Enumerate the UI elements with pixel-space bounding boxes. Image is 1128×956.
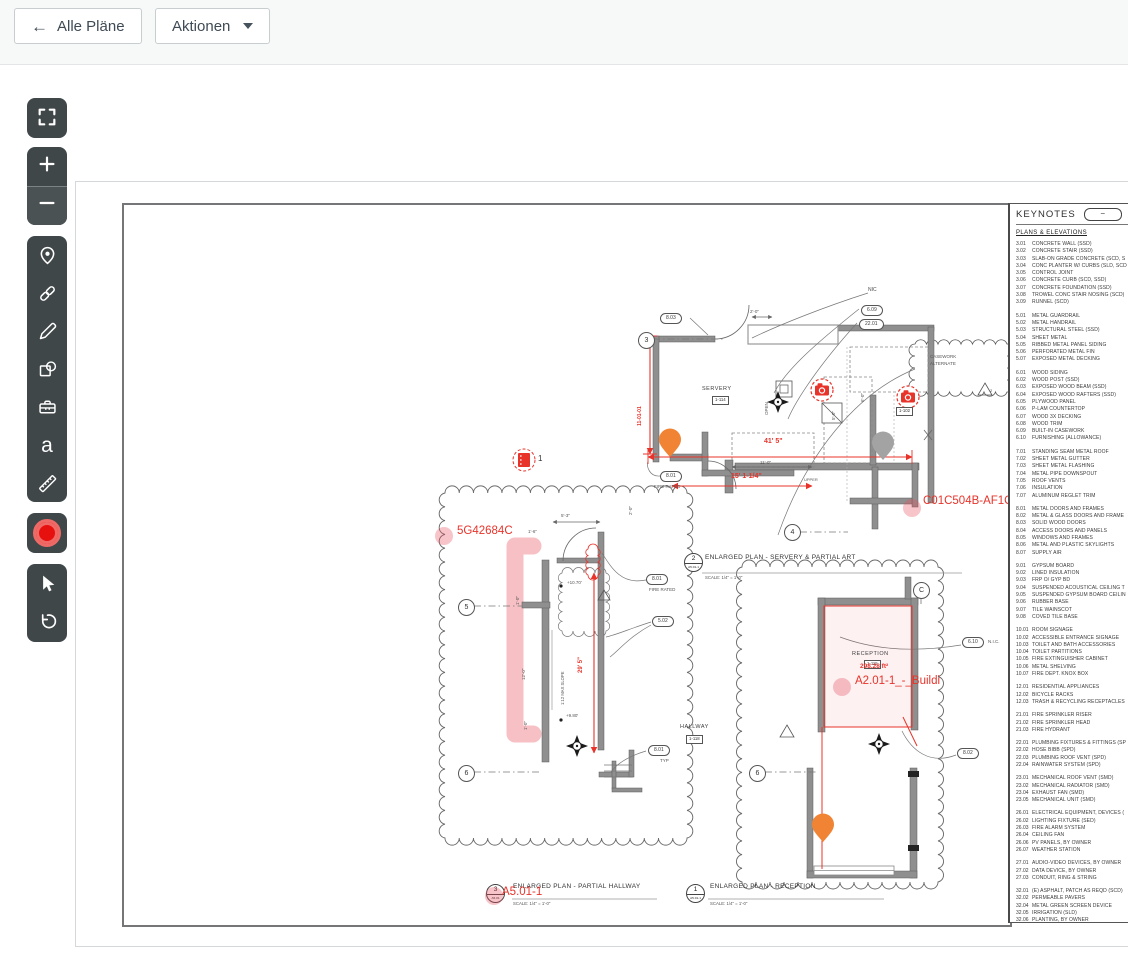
keynote-bubble-8-03: 8.03 [660, 313, 682, 324]
keynote-code: 8.07 [1016, 550, 1032, 557]
toolbox-button[interactable] [27, 388, 67, 426]
keynote-code: 9.03 [1016, 577, 1032, 584]
keynote-code: 32.04 [1016, 903, 1032, 910]
keynote-text: FIRE EXTINGUISHER CABINET [1032, 656, 1108, 663]
dim-1-0-a: 1'-0" [515, 596, 520, 605]
keynote-text: METAL DOORS AND FRAMES [1032, 506, 1104, 513]
zoom-out-button[interactable] [27, 186, 67, 226]
keynote-code: 5.01 [1016, 313, 1032, 320]
map-pin-icon [37, 245, 58, 266]
keynotes-section-title: PLANS & ELEVATIONS [1016, 230, 1128, 236]
keynote-text: METAL PIPE DOWNSPOUT [1032, 471, 1097, 478]
keynote-text: MECHANICAL ROOF VENT (SMD) [1032, 775, 1114, 782]
keynote-row: 6.06P-LAM COUNTERTOP [1016, 406, 1128, 413]
keynote-code: 5.05 [1016, 342, 1032, 349]
keynote-row: 8.05WINDOWS AND FRAMES [1016, 535, 1128, 542]
keynote-text: LIGHTING FIXTURE (SED) [1032, 818, 1096, 825]
keynote-bubble-22-01: 22.01 [859, 319, 884, 330]
measure-tool-button[interactable] [27, 464, 67, 502]
keynote-code: 7.06 [1016, 485, 1032, 492]
keynote-code: 3.05 [1016, 270, 1032, 277]
annotation-dot-reception[interactable] [833, 678, 851, 696]
shapes-tool-button[interactable] [27, 350, 67, 388]
keynote-row: 23.04EXHAUST FAN (SMD) [1016, 790, 1128, 797]
keynote-code: 3.08 [1016, 292, 1032, 299]
pin-tool-button[interactable] [27, 236, 67, 274]
keynote-code: 26.01 [1016, 810, 1032, 817]
keynote-group: 8.01METAL DOORS AND FRAMES8.02METAL & GL… [1016, 506, 1128, 557]
keynote-code: 10.03 [1016, 642, 1032, 649]
keynote-code: 23.05 [1016, 797, 1032, 804]
keynote-code: 10.02 [1016, 635, 1032, 642]
keynote-text: PLUMBING FIXTURES & FITTINGS (SP [1032, 740, 1126, 747]
keynote-group: 21.01FIRE SPRINKLER RISER21.02FIRE SPRIN… [1016, 712, 1128, 734]
location-pin-orange-2[interactable] [812, 814, 834, 843]
keynote-code: 5.06 [1016, 349, 1032, 356]
keynote-text: AUDIO-VIDEO DEVICES, BY OWNER [1032, 860, 1121, 867]
keynote-group: 32.01(E) ASPHALT, PATCH AS REQD (SCD)32.… [1016, 888, 1128, 923]
north-arrow-reception [868, 733, 890, 755]
keynote-text: SOLID WOOD DOORS [1032, 520, 1086, 527]
keynote-code: 6.03 [1016, 384, 1032, 391]
select-undo-toolbar [27, 564, 67, 642]
minus-icon [36, 192, 58, 219]
keynote-row: 5.03STRUCTURAL STEEL (SSD) [1016, 327, 1128, 334]
keynote-text: WINDOWS AND FRAMES [1032, 535, 1093, 542]
keynote-row: 22.03PLUMBING ROOF VENT (SPD) [1016, 755, 1128, 762]
actions-button-label: Aktionen [172, 18, 230, 35]
keynote-row: 21.02FIRE SPRINKLER HEAD [1016, 720, 1128, 727]
dim-5-3: 5'-3" [561, 513, 570, 518]
keynote-row: 26.04CEILING FAN [1016, 832, 1128, 839]
keynote-code: 10.04 [1016, 649, 1032, 656]
keynote-row: 26.01ELECTRICAL EQUIPMENT, DEVICES ( [1016, 810, 1128, 817]
keynote-text: TRASH & RECYCLING RECEPTACLES [1032, 699, 1125, 706]
keynote-text: ELECTRICAL EQUIPMENT, DEVICES ( [1032, 810, 1124, 817]
keynote-text: RUBBER BASE [1032, 599, 1069, 606]
back-arrow-icon: ← [31, 18, 48, 35]
text-icon: a [41, 435, 53, 456]
keynote-row: 32.06PLANTING, BY OWNER [1016, 917, 1128, 923]
dim-1-0-b: 1'-0" [523, 721, 528, 730]
keynote-code: 10.07 [1016, 671, 1032, 678]
note-max-slope: 1:12 MAX SLOPE [560, 671, 565, 705]
plus-icon [36, 153, 58, 180]
keynote-code: 22.01 [1016, 740, 1032, 747]
keynote-text: (E) ASPHALT, PATCH AS REQD (SCD) [1032, 888, 1123, 895]
keynote-code: 21.01 [1016, 712, 1032, 719]
ruler-icon [37, 473, 58, 494]
keynote-text: METAL SHELVING [1032, 664, 1076, 671]
keynote-code: 23.01 [1016, 775, 1032, 782]
keynote-text: RIBBED METAL PANEL SIDING [1032, 342, 1106, 349]
keynote-text: INSULATION [1032, 485, 1063, 492]
keynote-row: 7.05ROOF VENTS [1016, 478, 1128, 485]
keynote-row: 6.08WOOD TRIM [1016, 421, 1128, 428]
keynote-text: TOILET AND BATH ACCESSORIES [1032, 642, 1115, 649]
note-alternate: ALTERNATE [930, 361, 956, 366]
toolbox-icon [37, 397, 58, 418]
keynote-row: 32.01(E) ASPHALT, PATCH AS REQD (SCD) [1016, 888, 1128, 895]
keynote-text: FIRE SPRINKLER HEAD [1032, 720, 1090, 727]
keynote-code: 26.07 [1016, 847, 1032, 854]
keynote-row: 8.01METAL DOORS AND FRAMES [1016, 506, 1128, 513]
keynote-row: 32.05IRRIGATION (SLD) [1016, 910, 1128, 917]
keynote-row: 23.05MECHANICAL UNIT (SMD) [1016, 797, 1128, 804]
keynote-text: RUNNEL (SCD) [1032, 299, 1069, 306]
red-color-swatch-icon [33, 519, 61, 547]
dimension-vertical-red[interactable]: 11-01-01 [637, 406, 643, 426]
grid-bubble-3: 3 [638, 332, 655, 349]
keynote-code: 6.06 [1016, 406, 1032, 413]
keynote-text: PLUMBING ROOF VENT (SPD) [1032, 755, 1106, 762]
keynote-text: SLAB-ON GRADE CONCRETE (SCD, S [1032, 256, 1125, 263]
keynote-code: 3.03 [1016, 256, 1032, 263]
undo-icon [37, 611, 58, 632]
keynote-code: 10.06 [1016, 664, 1032, 671]
keynote-code: 6.09 [1016, 428, 1032, 435]
keynote-text: METAL HANDRAIL [1032, 320, 1076, 327]
keynote-text: STANDING SEAM METAL ROOF [1032, 449, 1109, 456]
keynote-code: 3.04 [1016, 263, 1032, 270]
north-arrow-hallway [566, 735, 588, 757]
keynotes-header: KEYNOTES − [1016, 208, 1128, 225]
keynotes-panel: KEYNOTES − PLANS & ELEVATIONS 3.01CONCRE… [1008, 203, 1128, 923]
actions-dropdown-button[interactable]: Aktionen [155, 8, 270, 44]
dim-5-0: 5'-0" [831, 411, 836, 420]
dimension-29-5[interactable]: 29' 5" [578, 657, 584, 673]
keynote-row: 5.05RIBBED METAL PANEL SIDING [1016, 342, 1128, 349]
note-nic: NIC [868, 287, 877, 293]
keynote-row: 10.02ACCESSIBLE ENTRANCE SIGNAGE [1016, 635, 1128, 642]
keynote-code: 6.05 [1016, 399, 1032, 406]
keynote-bubble-5-02: 5.02 [652, 616, 674, 627]
measured-area-value[interactable]: 298.28 ft² [860, 663, 888, 670]
keynote-text: IRRIGATION (SLD) [1032, 910, 1077, 917]
photo-marker-2[interactable] [897, 386, 919, 408]
keynote-text: SHEET METAL FLASHING [1032, 463, 1094, 470]
keynotes-title: KEYNOTES [1016, 209, 1076, 220]
keynote-row: 7.01STANDING SEAM METAL ROOF [1016, 449, 1128, 456]
keynote-row: 3.03SLAB-ON GRADE CONCRETE (SCD, S [1016, 256, 1128, 263]
viewport-scale-hallway: SCALE: 1/4" = 1'-0" [513, 901, 550, 906]
room-label-servery: SERVERY [702, 386, 732, 392]
keynote-text: CONCRETE CURB (SCD, SSD) [1032, 277, 1106, 284]
keynote-text: CEILING FAN [1032, 832, 1064, 839]
keynote-bubble-8-01-b: 8.01 [646, 574, 668, 585]
link-icon [37, 283, 58, 304]
dim-2-0-top: 2'-0" [750, 309, 759, 314]
room-number-hallway: 1-118 [686, 735, 703, 744]
keynote-code: 12.02 [1016, 692, 1032, 699]
keynote-row: 5.06PERFORATED METAL FIN [1016, 349, 1128, 356]
keynote-text: WEATHER STATION [1032, 847, 1080, 854]
keynote-text: ROOF VENTS [1032, 478, 1066, 485]
keynote-code: 3.01 [1016, 241, 1032, 248]
keynote-row: 5.07EXPOSED METAL DECKING [1016, 356, 1128, 363]
keynote-code: 10.01 [1016, 627, 1032, 634]
photo-marker-tag: 1-102 [896, 407, 913, 416]
keynote-row: 9.05SUSPENDED GYPSUM BOARD CEILIN [1016, 592, 1128, 599]
dim-6-0: 6'-0" [860, 393, 865, 402]
keynote-row: 6.02WOOD POST (SSD) [1016, 377, 1128, 384]
keynote-code: 22.03 [1016, 755, 1032, 762]
note-open: OPEN [764, 402, 769, 415]
keynote-text: PERMEABLE PAVERS [1032, 895, 1085, 902]
viewport-scale-reception: SCALE: 1/4" = 1'-0" [710, 901, 747, 906]
keynote-text: SUPPLY AIR [1032, 550, 1062, 557]
keynote-row: 3.02CONCRETE STAIR (SSD) [1016, 248, 1128, 255]
viewport-ref-2: 2 A5.01-1 [684, 553, 703, 572]
keynote-text: SHEET METAL GUTTER [1032, 456, 1090, 463]
keynote-text: BUILT-IN CASEWORK [1032, 428, 1084, 435]
dim-11-0: 11'-0" [760, 460, 771, 465]
dimension-41-5[interactable]: 41' 5" [764, 438, 783, 445]
keynote-text: ACCESS DOORS AND PANELS [1032, 528, 1107, 535]
keynote-row: 6.05PLYWOOD PANEL [1016, 399, 1128, 406]
keynote-text: ROOM SIGNAGE [1032, 627, 1073, 634]
keynote-code: 6.08 [1016, 421, 1032, 428]
keynote-text: PLYWOOD PANEL [1032, 399, 1076, 406]
note-fire-rated-a: FIRE RATED [654, 484, 680, 489]
keynote-row: 7.07ALUMINUM REGLET TRIM [1016, 493, 1128, 500]
keynote-code: 7.05 [1016, 478, 1032, 485]
keynote-row: 3.05CONTROL JOINT [1016, 270, 1128, 277]
select-tool-button[interactable] [27, 564, 67, 602]
keynote-code: 32.02 [1016, 895, 1032, 902]
keynote-code: 9.04 [1016, 585, 1032, 592]
keynote-group: 12.01RESIDENTIAL APPLIANCES12.02BICYCLE … [1016, 684, 1128, 706]
keynote-code: 8.06 [1016, 542, 1032, 549]
keynotes-collapse-button[interactable]: − [1084, 208, 1122, 221]
keynote-row: 8.06METAL AND PLASTIC SKYLIGHTS [1016, 542, 1128, 549]
keynote-code: 3.02 [1016, 248, 1032, 255]
plan-sheet[interactable]: NIC 8.03 6.09 22.01 3 SERVERY 1-114 2'-0… [122, 203, 1012, 927]
keynote-row: 9.03FRP O/ GYP BD [1016, 577, 1128, 584]
document-marker-number: 1 [538, 454, 542, 463]
keynote-code: 6.07 [1016, 414, 1032, 421]
keynote-code: 26.06 [1016, 840, 1032, 847]
keynote-text: CONTROL JOINT [1032, 270, 1073, 277]
keynote-text: ALUMINUM REGLET TRIM [1032, 493, 1096, 500]
keynote-row: 9.06RUBBER BASE [1016, 599, 1128, 606]
viewport-ref-1-sheet: A5.01-1 [687, 895, 704, 902]
keynote-text: PLANTING, BY OWNER [1032, 917, 1089, 923]
keynote-text: METAL AND PLASTIC SKYLIGHTS [1032, 542, 1114, 549]
keynote-bubble-8-01-a: 8.01 [660, 471, 682, 482]
draw-tool-button[interactable] [27, 312, 67, 350]
keynote-text: BICYCLE RACKS [1032, 692, 1073, 699]
keynote-text: FRP O/ GYP BD [1032, 577, 1070, 584]
keynote-text: WOOD TRIM [1032, 421, 1063, 428]
keynote-code: 3.09 [1016, 299, 1032, 306]
keynote-text: EXPOSED WOOD BEAM (SSD) [1032, 384, 1107, 391]
keynote-group: 27.01AUDIO-VIDEO DEVICES, BY OWNER27.02D… [1016, 860, 1128, 882]
keynote-text: FIRE HYDRANT [1032, 727, 1070, 734]
note-casework: CASEWORK [930, 354, 956, 359]
dimension-15-1-1-4[interactable]: 15' 1-1/4" [731, 473, 762, 480]
keynote-row: 3.04CONC PLANTER W/ CURBS (SLD, SCD [1016, 263, 1128, 270]
fullscreen-button[interactable] [27, 98, 67, 138]
dim-12-0: 12'-0" [521, 669, 526, 680]
note-typ: TYP [660, 758, 669, 763]
keynote-group: 7.01STANDING SEAM METAL ROOF7.02SHEET ME… [1016, 449, 1128, 500]
keynote-code: 6.10 [1016, 435, 1032, 442]
room-number-servery: 1-114 [712, 396, 729, 405]
keynote-code: 27.03 [1016, 875, 1032, 882]
keynote-text: FIRE ALARM SYSTEM [1032, 825, 1085, 832]
keynote-code: 21.02 [1016, 720, 1032, 727]
annotation-label-hallway[interactable]: 5G42684C [457, 525, 513, 537]
keynote-text: PERFORATED METAL FIN [1032, 349, 1095, 356]
keynote-text: CONDUIT, RING & STRING [1032, 875, 1097, 882]
keynote-text: METAL & GLASS DOORS AND FRAME [1032, 513, 1124, 520]
location-pin-orange-1[interactable] [659, 429, 681, 458]
keynote-code: 32.01 [1016, 888, 1032, 895]
room-label-reception: RECEPTION [852, 651, 889, 657]
viewport-title-reception: ENLARGED PLAN - RECEPTION [710, 883, 816, 890]
keynote-row: 27.03CONDUIT, RING & STRING [1016, 875, 1128, 882]
keynote-code: 7.02 [1016, 456, 1032, 463]
text-tool-button[interactable]: a [27, 426, 67, 464]
keynote-row: 32.04METAL GREEN SCREEN DEVICE [1016, 903, 1128, 910]
keynote-code: 26.02 [1016, 818, 1032, 825]
keynote-text: MECHANICAL RADIATOR (SMD) [1032, 783, 1110, 790]
color-picker-button[interactable] [27, 513, 67, 553]
link-tool-button[interactable] [27, 274, 67, 312]
keynote-row: 10.06METAL SHELVING [1016, 664, 1128, 671]
keynote-row: 26.03FIRE ALARM SYSTEM [1016, 825, 1128, 832]
cursor-icon [37, 573, 58, 594]
keynote-text: SUSPENDED GYPSUM BOARD CEILIN [1032, 592, 1126, 599]
keynote-text: STRUCTURAL STEEL (SSD) [1032, 327, 1100, 334]
keynote-row: 22.01PLUMBING FIXTURES & FITTINGS (SP [1016, 740, 1128, 747]
room-label-hallway: HALLWAY [680, 724, 709, 730]
keynote-row: 6.04EXPOSED WOOD RAFTERS (SSD) [1016, 392, 1128, 399]
keynote-row: 23.01MECHANICAL ROOF VENT (SMD) [1016, 775, 1128, 782]
keynote-row: 7.06INSULATION [1016, 485, 1128, 492]
keynote-row: 8.07SUPPLY AIR [1016, 550, 1128, 557]
keynote-text: CONCRETE FOUNDATION (SSD) [1032, 285, 1112, 292]
keynote-row: 6.01WOOD SIDING [1016, 370, 1128, 377]
back-to-all-plans-button[interactable]: ← Alle Pläne [14, 8, 142, 44]
triangle-marker-2: 2 [990, 388, 992, 393]
keynote-row: 6.03EXPOSED WOOD BEAM (SSD) [1016, 384, 1128, 391]
annotation-dot-sheet[interactable] [485, 887, 503, 905]
keynote-row: 26.02LIGHTING FIXTURE (SED) [1016, 818, 1128, 825]
annotation-label-sheet[interactable]: A5.01-1 [502, 886, 542, 898]
photo-marker-1[interactable] [811, 379, 833, 401]
elevation-10-70: +10.70' [567, 580, 582, 585]
keynote-row: 10.03TOILET AND BATH ACCESSORIES [1016, 642, 1128, 649]
keynote-text: CONCRETE WALL (SSD) [1032, 241, 1092, 248]
zoom-controls [27, 147, 67, 225]
keynote-code: 10.05 [1016, 656, 1032, 663]
keynote-row: 9.07TILE WAINSCOT [1016, 607, 1128, 614]
keynote-code: 8.03 [1016, 520, 1032, 527]
keynote-bubble-8-02: 8.02 [957, 748, 979, 759]
keynote-group: 22.01PLUMBING FIXTURES & FITTINGS (SP22.… [1016, 740, 1128, 769]
keynote-row: 5.04SHEET METAL [1016, 335, 1128, 342]
keynote-row: 9.01GYPSUM BOARD [1016, 563, 1128, 570]
keynote-text: TILE WAINSCOT [1032, 607, 1072, 614]
keynote-row: 21.03FIRE HYDRANT [1016, 727, 1128, 734]
keynote-row: 21.01FIRE SPRINKLER RISER [1016, 712, 1128, 719]
keynote-row: 10.07FIRE DEPT. KNOX BOX [1016, 671, 1128, 678]
grid-bubble-6-right: 6 [749, 765, 766, 782]
note-nic-dotted: N.I.C. [988, 639, 1000, 644]
keynote-code: 7.01 [1016, 449, 1032, 456]
keynote-code: 9.07 [1016, 607, 1032, 614]
keynote-code: 9.08 [1016, 614, 1032, 621]
grid-bubble-4: 4 [784, 524, 801, 541]
keynote-row: 23.02MECHANICAL RADIATOR (SMD) [1016, 783, 1128, 790]
keynote-text: CONCRETE STAIR (SSD) [1032, 248, 1093, 255]
keynote-row: 26.07WEATHER STATION [1016, 847, 1128, 854]
keynote-row: 7.04METAL PIPE DOWNSPOUT [1016, 471, 1128, 478]
keynote-bubble-6-09: 6.09 [861, 305, 883, 316]
keynote-text: SHEET METAL [1032, 335, 1067, 342]
keynote-code: 3.07 [1016, 285, 1032, 292]
keynote-text: FIRE DEPT. KNOX BOX [1032, 671, 1088, 678]
keynote-row: 32.02PERMEABLE PAVERS [1016, 895, 1128, 902]
keynote-code: 26.03 [1016, 825, 1032, 832]
keynote-code: 9.06 [1016, 599, 1032, 606]
keynote-text: TOILET PARTITIONS [1032, 649, 1082, 656]
keynote-group: 9.01GYPSUM BOARD9.02LINED INSULATION9.03… [1016, 563, 1128, 621]
keynote-group: 6.01WOOD SIDING6.02WOOD POST (SSD)6.03EX… [1016, 370, 1128, 443]
keynote-code: 23.04 [1016, 790, 1032, 797]
fullscreen-icon [36, 106, 58, 128]
keynote-code: 7.03 [1016, 463, 1032, 470]
keynote-row: 22.02HOSE BIBB (SPD) [1016, 747, 1128, 754]
elevation-9-80: +9.80' [566, 713, 578, 718]
keynote-text: RESIDENTIAL APPLIANCES [1032, 684, 1099, 691]
pencil-icon [37, 321, 58, 342]
keynote-text: CONC PLANTER W/ CURBS (SLD, SCD [1032, 263, 1127, 270]
document-marker[interactable] [513, 449, 535, 471]
keynote-row: 26.06PV PANELS, BY OWNER [1016, 840, 1128, 847]
keynote-code: 22.02 [1016, 747, 1032, 754]
keynote-row: 7.02SHEET METAL GUTTER [1016, 456, 1128, 463]
keynote-text: WOOD 3X DECKING [1032, 414, 1081, 421]
keynote-text: MECHANICAL UNIT (SMD) [1032, 797, 1096, 804]
viewport-title-servery: ENLARGED PLAN - SERVERY & PARTIAL ART [705, 554, 856, 561]
keynote-text: EXPOSED WOOD RAFTERS (SSD) [1032, 392, 1116, 399]
annotation-dot-hallway[interactable] [435, 527, 453, 545]
keynote-group: 23.01MECHANICAL ROOF VENT (SMD)23.02MECH… [1016, 775, 1128, 804]
keynote-code: 6.01 [1016, 370, 1032, 377]
keynote-row: 10.04TOILET PARTITIONS [1016, 649, 1128, 656]
keynote-row: 8.02METAL & GLASS DOORS AND FRAME [1016, 513, 1128, 520]
keynote-text: FURNISHING (ALLOWANCE) [1032, 435, 1101, 442]
keynote-text: HOSE BIBB (SPD) [1032, 747, 1075, 754]
keynote-group: 26.01ELECTRICAL EQUIPMENT, DEVICES (26.0… [1016, 810, 1128, 854]
keynote-row: 6.10FURNISHING (ALLOWANCE) [1016, 435, 1128, 442]
keynote-row: 3.07CONCRETE FOUNDATION (SSD) [1016, 285, 1128, 292]
keynote-row: 3.01CONCRETE WALL (SSD) [1016, 241, 1128, 248]
keynote-code: 26.04 [1016, 832, 1032, 839]
grid-bubble-6-left: 6 [458, 765, 475, 782]
keynote-code: 6.04 [1016, 392, 1032, 399]
zoom-in-button[interactable] [27, 147, 67, 186]
annotation-dot-servery[interactable] [903, 499, 921, 517]
keynote-group: 5.01METAL GUARDRAIL5.02METAL HANDRAIL5.0… [1016, 313, 1128, 364]
annotation-label-reception[interactable]: A2.01-1_-_Buildi [855, 675, 940, 687]
keynote-row: 9.04SUSPENDED ACOUSTICAL CEILING T [1016, 585, 1128, 592]
undo-button[interactable] [27, 602, 67, 640]
keynote-group: 10.01ROOM SIGNAGE10.02ACCESSIBLE ENTRANC… [1016, 627, 1128, 678]
